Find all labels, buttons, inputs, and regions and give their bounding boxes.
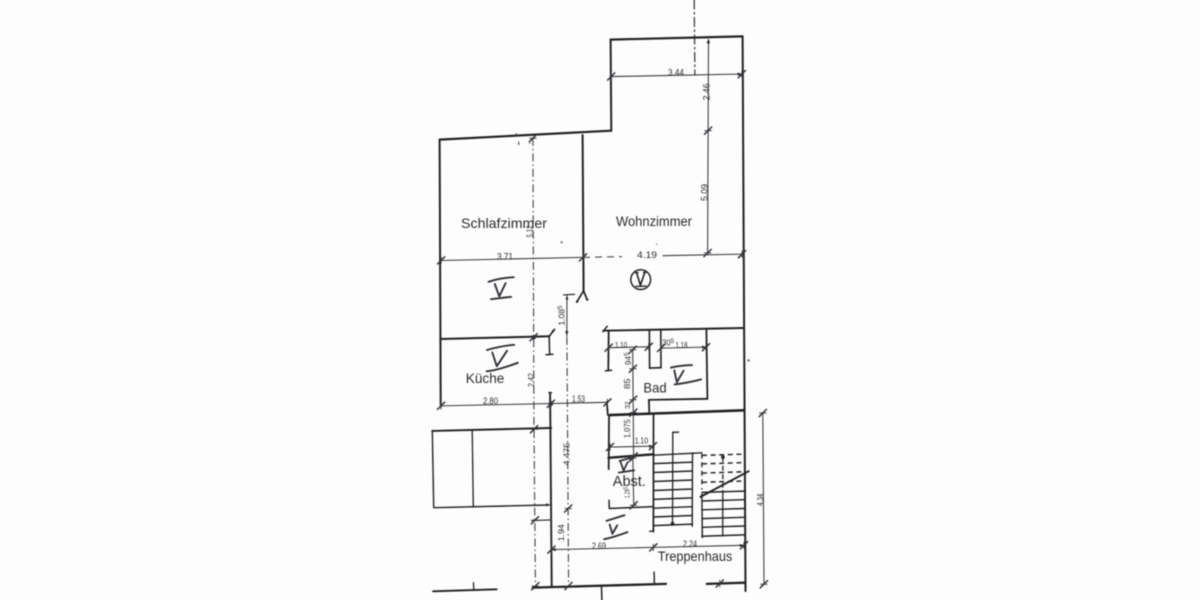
svg-text:2.42: 2.42	[526, 373, 536, 387]
svg-text:1.10: 1.10	[635, 436, 649, 446]
svg-text:1.075: 1.075	[622, 419, 632, 438]
svg-text:1.085: 1.085	[556, 305, 566, 325]
svg-text:Schlafzimmer: Schlafzimmer	[461, 215, 547, 231]
svg-text:2.80: 2.80	[483, 396, 498, 406]
svg-text:2.69: 2.69	[592, 541, 606, 551]
svg-text:Abst.: Abst.	[613, 474, 646, 490]
svg-text:Treppenhaus: Treppenhaus	[658, 548, 733, 564]
svg-text:3.44: 3.44	[668, 67, 684, 77]
svg-text:2.46: 2.46	[702, 83, 712, 100]
svg-text:305: 305	[662, 338, 674, 348]
svg-text:1.94: 1.94	[556, 524, 566, 541]
svg-text:1.18: 1.18	[676, 340, 688, 350]
svg-text:85: 85	[622, 378, 632, 389]
svg-text:Wohnzimmer: Wohnzimmer	[616, 214, 692, 229]
svg-text:945: 945	[623, 352, 633, 365]
svg-text:4.19: 4.19	[637, 250, 657, 260]
svg-text:5.09: 5.09	[699, 184, 709, 201]
svg-text:4.34: 4.34	[755, 494, 765, 506]
svg-text:4.475: 4.475	[562, 442, 572, 465]
svg-text:32: 32	[623, 401, 632, 409]
svg-text:3.71: 3.71	[497, 251, 513, 261]
svg-text:1.53: 1.53	[572, 394, 585, 404]
svg-text:Bad: Bad	[643, 379, 666, 395]
svg-text:Küche: Küche	[466, 370, 505, 386]
svg-text:1.10: 1.10	[615, 340, 627, 350]
